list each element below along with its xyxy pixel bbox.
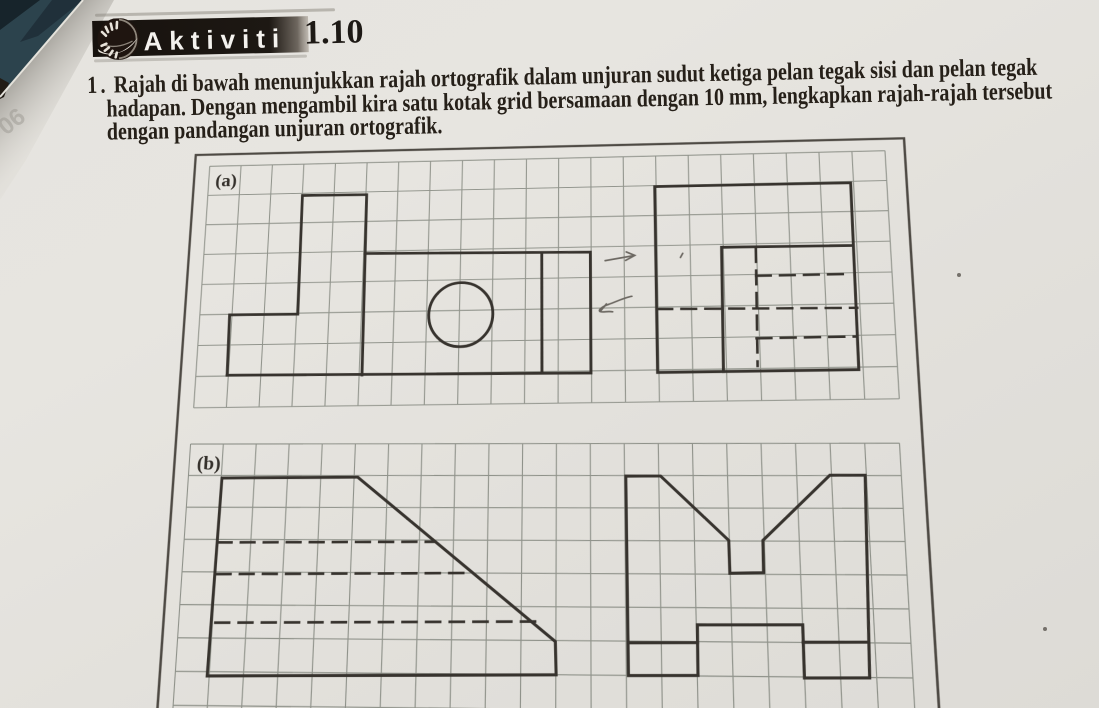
svg-text:Aktiviti: Aktiviti — [143, 23, 286, 56]
svg-text:(a): (a) — [215, 170, 238, 190]
svg-text:(b): (b) — [196, 452, 221, 474]
